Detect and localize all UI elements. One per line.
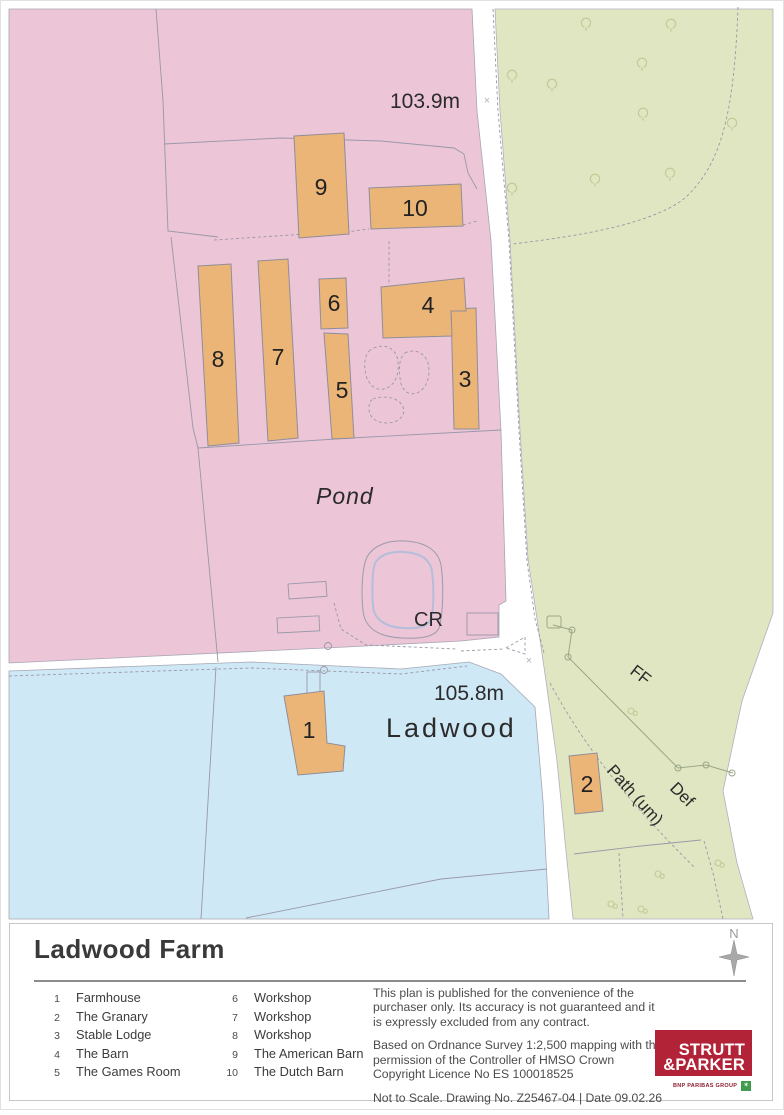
cr-plot-outline [467,613,498,635]
place-name-label: Ladwood [386,713,517,743]
info-panel: Ladwood Farm N 1Farmhouse 2The Granary 3… [9,923,773,1101]
building-number-3: 3 [459,366,472,392]
legend-item: 8Workshop [214,1027,364,1046]
road-junction-triangle [506,637,525,654]
legend-item: 10The Dutch Barn [214,1064,364,1083]
legend-item: 4The Barn [36,1046,181,1065]
bnp-paribas-label: BNP PARIBAS GROUP [673,1083,737,1089]
building-number-6: 6 [328,290,341,316]
spot-height-north-label: 103.9m [390,90,460,113]
legend-item: 7Workshop [214,1009,364,1028]
legend-name: Workshop [254,1027,311,1042]
notes-block: This plan is published for the convenien… [373,986,665,1115]
legend-number: 4 [36,1049,60,1061]
building-number-10: 10 [402,195,428,221]
disclaimer-text: This plan is published for the convenien… [373,986,665,1029]
legend-item: 9The American Barn [214,1046,364,1065]
legend-name: The American Barn [254,1046,364,1061]
legend-number: 3 [36,1030,60,1042]
compass-star-icon [719,940,749,976]
legend-item: 2The Granary [36,1009,181,1028]
legend-name: The Granary [76,1009,148,1024]
building-number-5: 5 [336,377,349,403]
pond-label: Pond [316,483,374,509]
legend-number: 2 [36,1012,60,1024]
building-number-2: 2 [581,771,594,797]
north-label: N [710,928,758,940]
legend-item: 5The Games Room [36,1064,181,1083]
plan-page: 1 2 3 4 5 6 7 8 9 10 103.9m 105.8m Ladwo… [0,0,784,1110]
strutt-parker-wordmark: STRUTT &PARKER [655,1030,752,1076]
logo-line-2: &PARKER [663,1058,745,1073]
legend-number: 5 [36,1067,60,1079]
legend-number: 10 [214,1067,238,1079]
building-number-7: 7 [272,344,285,370]
strutt-parker-logo: STRUTT &PARKER BNP PARIBAS GROUP ✶ [655,1030,752,1091]
legend-number: 1 [36,993,60,1005]
legend-item: 1Farmhouse [36,990,181,1009]
legend-column-1: 1Farmhouse 2The Granary 3Stable Lodge 4T… [36,990,181,1083]
building-number-9: 9 [315,174,328,200]
legend-name: The Barn [76,1046,129,1061]
north-indicator: N [710,928,758,981]
cr-label: CR [414,609,443,631]
title-divider [34,980,746,982]
os-attribution-text: Based on Ordnance Survey 1:2,500 mapping… [373,1038,665,1081]
spot-height-south-label: 105.8m [434,682,504,705]
survey-cross-mark: × [484,95,490,107]
bnp-paribas-byline: BNP PARIBAS GROUP ✶ [673,1081,752,1091]
site-plan-map: 1 2 3 4 5 6 7 8 9 10 103.9m 105.8m Ladwo… [1,1,784,921]
building-number-8: 8 [212,346,225,372]
legend-item: 6Workshop [214,990,364,1009]
building-number-4: 4 [422,292,435,318]
legend-name: Workshop [254,990,311,1005]
legend-number: 8 [214,1030,238,1042]
legend-column-2: 6Workshop 7Workshop 8Workshop 9The Ameri… [214,990,364,1083]
legend-item: 3Stable Lodge [36,1027,181,1046]
legend-name: The Games Room [76,1064,181,1079]
plan-title: Ladwood Farm [34,934,225,965]
bnp-paribas-icon: ✶ [741,1081,751,1091]
legend-name: The Dutch Barn [254,1064,344,1079]
legend-number: 6 [214,993,238,1005]
survey-cross-mark: × [526,655,532,667]
legend-number: 9 [214,1049,238,1061]
legend-name: Farmhouse [76,990,141,1005]
building-number-1: 1 [303,717,316,743]
legend-name: Stable Lodge [76,1027,151,1042]
legend-name: Workshop [254,1009,311,1024]
scale-note: Not to Scale. Drawing No. Z25467-04 | Da… [373,1091,665,1105]
legend-number: 7 [214,1012,238,1024]
